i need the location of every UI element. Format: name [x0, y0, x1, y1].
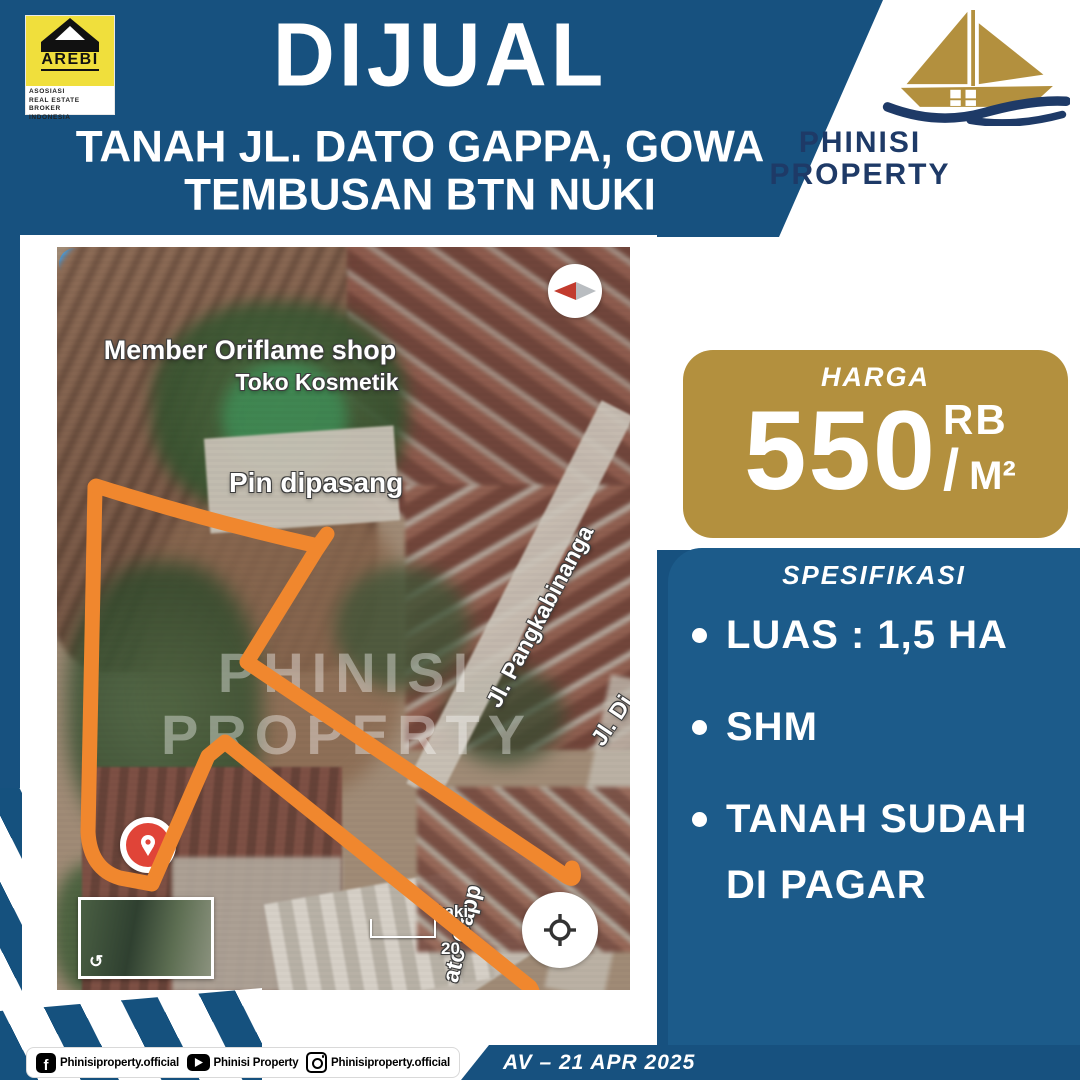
bullet-icon	[692, 786, 726, 918]
arebi-logo: AREBI ASOSIASI REAL ESTATE BROKER INDONE…	[26, 16, 114, 114]
spec-title: SPESIFIKASI	[668, 560, 1080, 591]
price-slash: /	[943, 442, 959, 500]
arebi-subtext: ASOSIASI REAL ESTATE BROKER INDONESIA	[29, 88, 111, 122]
youtube-link[interactable]: Phinisi Property	[187, 1054, 299, 1071]
phinisi-boat-logo-icon	[880, 8, 1070, 126]
locate-button[interactable]	[522, 892, 598, 968]
spec-item-pagar: TANAH SUDAH DI PAGAR	[692, 786, 1064, 918]
footer-date-bar: AV – 21 APR 2025	[455, 1045, 1080, 1080]
instagram-icon	[306, 1052, 327, 1073]
arebi-house-icon	[39, 16, 101, 52]
property-outline-annotation	[57, 247, 630, 990]
subtitle-line2: TEMBUSAN BTN NUKI	[40, 170, 800, 221]
facebook-icon: f	[36, 1053, 56, 1073]
spec-item-shm: SHM	[692, 694, 1064, 760]
price-unit-sqm: M²	[969, 452, 1016, 500]
spec-item-luas: LUAS : 1,5 HA	[692, 602, 1064, 668]
price-amount: 550	[744, 392, 937, 532]
target-icon	[543, 913, 577, 947]
compass-needle-icon	[552, 280, 598, 302]
subtitle-line1: TANAH JL. DATO GAPPA, GOWA	[40, 122, 800, 173]
youtube-icon	[187, 1054, 210, 1071]
social-bar: f Phinisiproperty.official Phinisi Prope…	[26, 1047, 460, 1078]
flyer-poster: PHINISI PROPERTY AREBI ASOSIASI REAL EST…	[0, 0, 1080, 1080]
satellite-map[interactable]: Member Oriflame shop Toko Kosmetik Pin d…	[57, 247, 630, 990]
bullet-icon	[692, 602, 726, 668]
instagram-link[interactable]: Phinisiproperty.official	[306, 1052, 450, 1073]
footer-code-date: AV – 21 APR 2025	[503, 1051, 695, 1075]
price-value: 550 RB / M²	[700, 392, 1060, 532]
spec-list: LUAS : 1,5 HA SHM TANAH SUDAH DI PAGAR	[692, 602, 1064, 944]
page-title: DIJUAL	[150, 4, 730, 108]
compass-button[interactable]	[548, 264, 602, 318]
arebi-name: AREBI	[41, 52, 98, 71]
arebi-logo-background: AREBI	[26, 16, 114, 86]
price-unit-thousands: RB	[943, 398, 1016, 442]
facebook-link[interactable]: f Phinisiproperty.official	[36, 1053, 179, 1073]
bullet-icon	[692, 694, 726, 760]
